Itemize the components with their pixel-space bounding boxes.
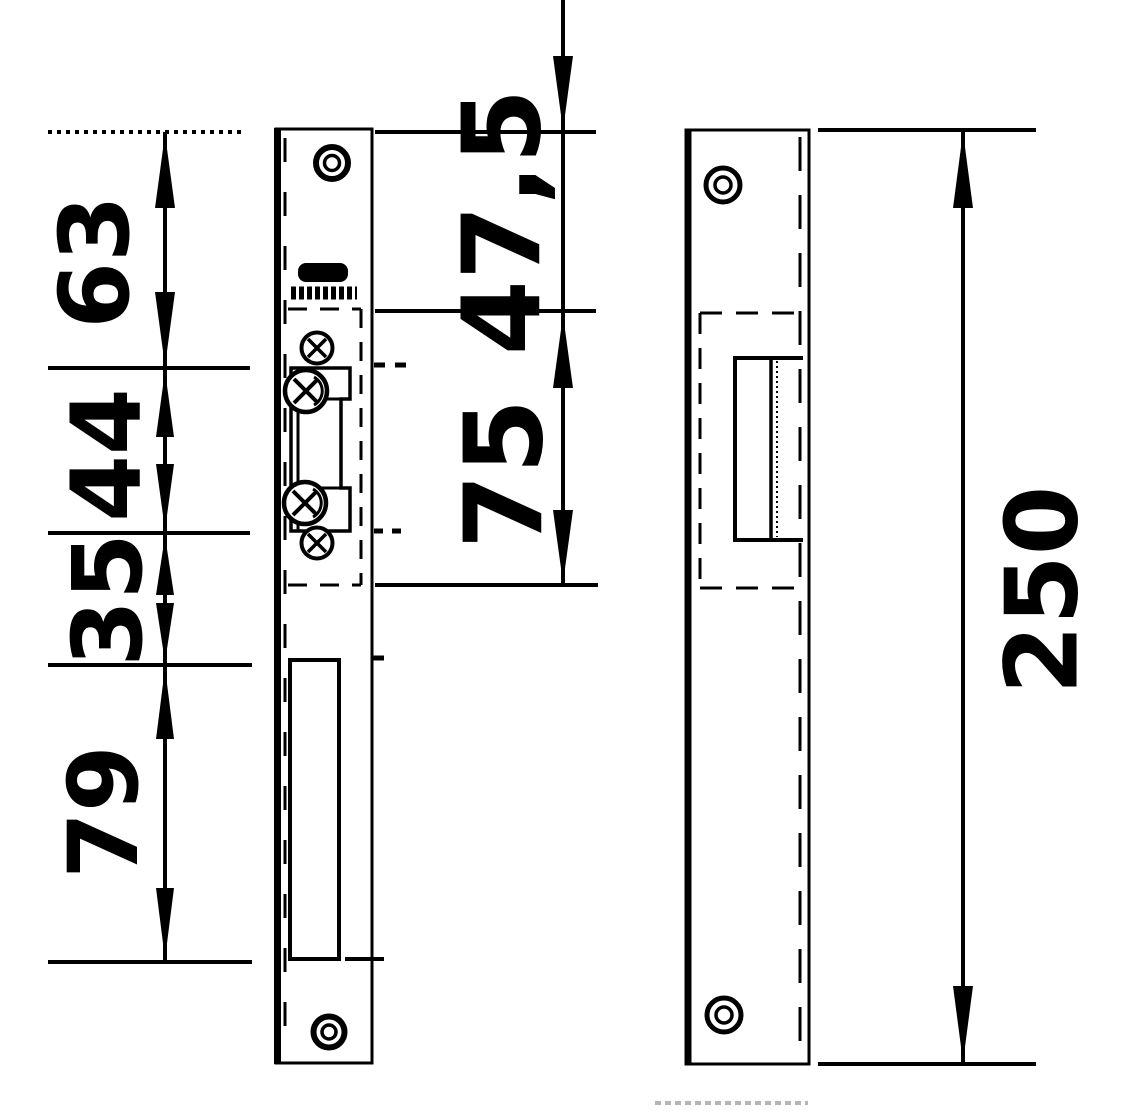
side-screw-hole-bottom [707, 998, 741, 1032]
lock-pocket-cutout [290, 660, 339, 959]
latch-keeper [284, 333, 352, 559]
side-plate-outline [686, 130, 809, 1064]
dim-label-47-5: 47,5 [441, 89, 566, 355]
keeper-level-hidden-stubs [374, 365, 407, 531]
dim-label-35: 35 [52, 533, 164, 667]
dim-label-79: 79 [48, 745, 160, 879]
dim-label-250: 250 [984, 486, 1101, 695]
dim-label-44: 44 [51, 388, 163, 522]
side-hidden-strike-body [700, 313, 797, 588]
dim-label-75: 75 [443, 399, 568, 549]
overall-height-dimension: 250 [818, 130, 1101, 1064]
technical-drawing-page: 63 44 35 79 [0, 0, 1127, 1115]
screw-hole-bottom [314, 1017, 345, 1048]
latch-opening [735, 358, 803, 540]
left-dimension-chain: 63 44 35 79 [39, 132, 252, 962]
brand-logo [291, 263, 357, 293]
side-view-faceplate [655, 129, 809, 1103]
dim-label-63: 63 [39, 195, 151, 329]
side-screw-hole-top [706, 168, 740, 202]
keeper-screw-torx-top [302, 333, 333, 364]
keeper-screw-phillips-lower [284, 482, 326, 524]
screw-hole-top [316, 147, 348, 179]
center-dimension-chain: 47,5 75 [375, 0, 598, 585]
keeper-screw-phillips-upper [285, 370, 327, 412]
keeper-screw-torx-bottom [302, 528, 333, 559]
front-view-faceplate [276, 128, 407, 1064]
strike-plate-drawing: 63 44 35 79 [0, 0, 1127, 1115]
cutout-level-ticks [345, 658, 384, 959]
